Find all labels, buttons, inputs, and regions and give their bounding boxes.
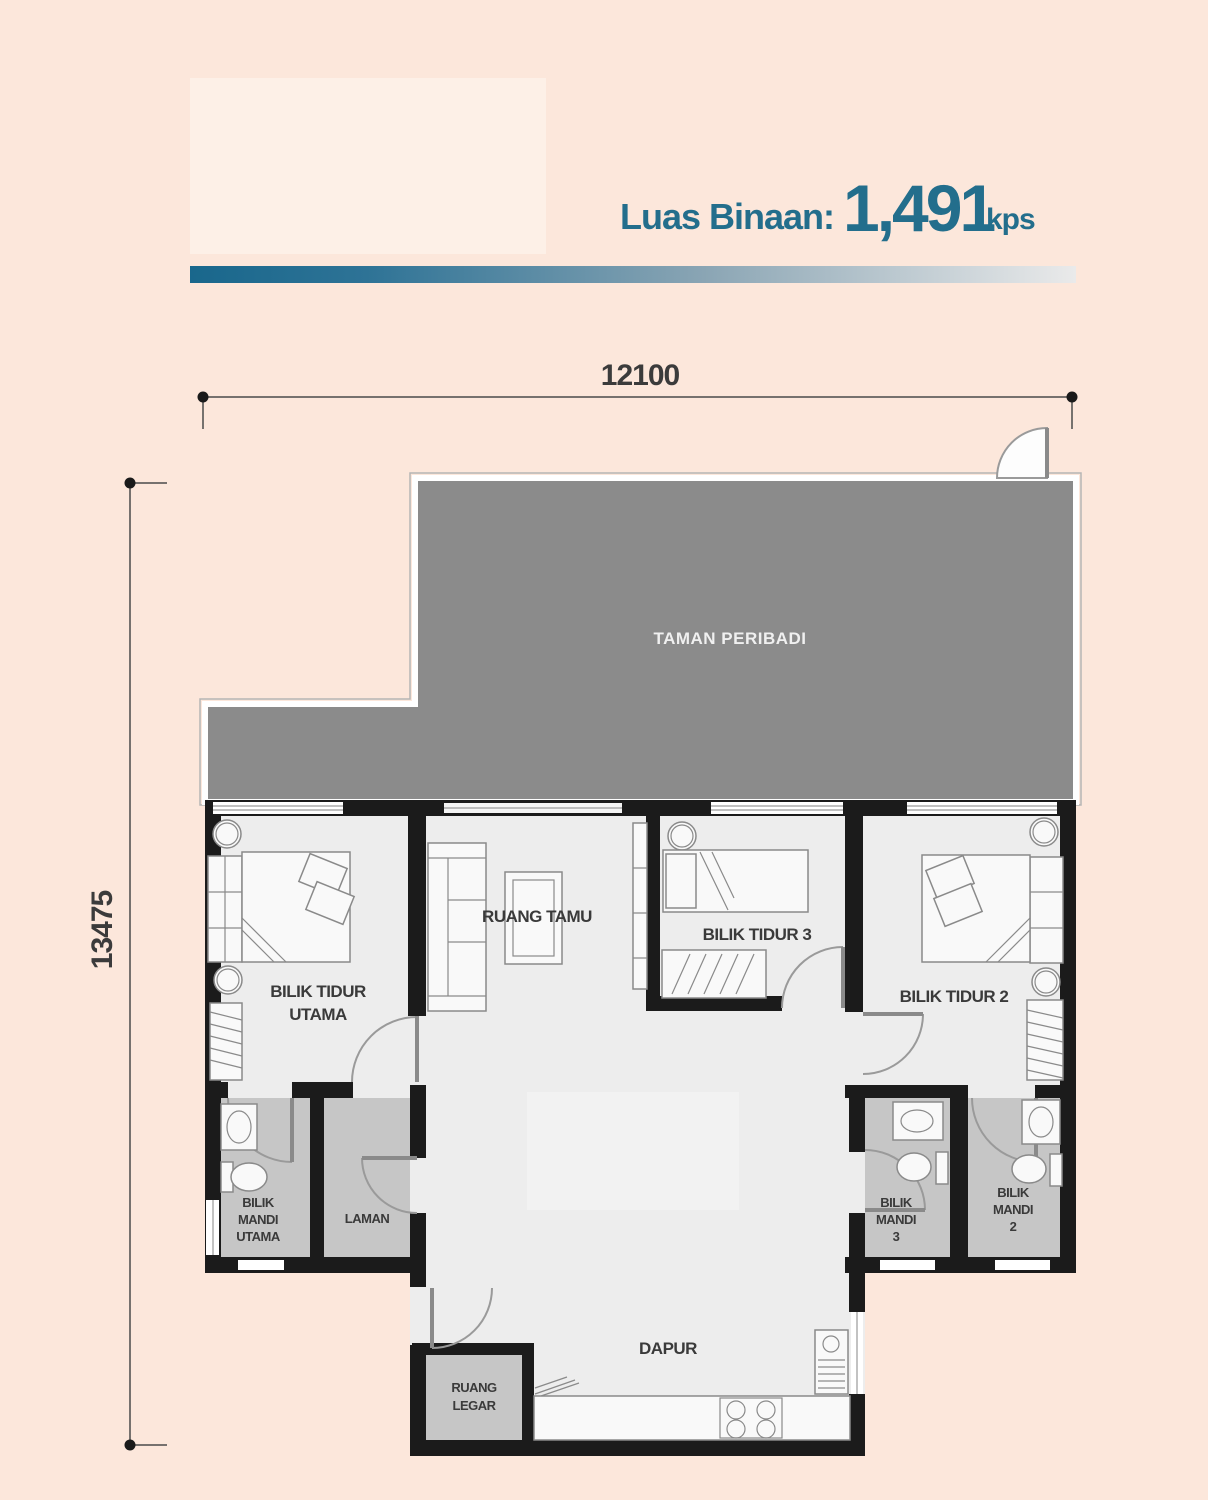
garden-area <box>205 478 1076 802</box>
area-unit: kps <box>986 203 1035 236</box>
label-foyer-line1: RUANG <box>451 1380 497 1395</box>
kitchen-sink-unit <box>815 1330 848 1394</box>
ceiling-fan-icon <box>213 820 241 848</box>
label-bathmaster-line1: BILIK <box>242 1195 275 1210</box>
header: Luas Binaan: 1,491 kps <box>190 78 1076 283</box>
label-bath2-line3: 2 <box>1010 1219 1017 1234</box>
label-kitchen: DAPUR <box>639 1339 697 1358</box>
dimension-top: 12100 <box>198 359 1078 429</box>
dining-table-faint <box>527 1092 739 1210</box>
label-living: RUANG TAMU <box>482 907 592 926</box>
label-bath2-line2: MANDI <box>993 1202 1033 1217</box>
window-bed3 <box>711 802 843 814</box>
wall-bath3-bath2 <box>950 1098 968 1257</box>
label-bath2-line1: BILIK <box>997 1185 1030 1200</box>
wall-bath3-top <box>845 1085 968 1098</box>
area-value: 1,491 <box>843 171 994 245</box>
ceiling-fan-icon <box>214 966 242 994</box>
private-garden: TAMAN PERIBADI <box>200 428 1081 805</box>
wall-master-south-1 <box>205 1082 228 1098</box>
floorplan-page: Luas Binaan: 1,491 kps 12100 13475 TAMAN… <box>0 0 1208 1500</box>
dim-top-dot-left <box>198 392 209 403</box>
ceiling-fan-icon <box>1032 968 1060 996</box>
window-master <box>213 802 343 814</box>
wall-living-bed3 <box>646 800 660 1008</box>
master-wardrobe <box>210 1003 242 1080</box>
toilet-bowl <box>1012 1155 1046 1183</box>
wall-bed3-bed2 <box>845 800 863 1012</box>
label-bed3: BILIK TIDUR 3 <box>703 925 812 944</box>
bed3-desk <box>662 950 766 998</box>
wall-laman-right-2 <box>410 1213 426 1287</box>
toilet-bowl <box>231 1163 267 1191</box>
tv-console <box>633 823 647 989</box>
label-master-line1: BILIK TIDUR <box>270 982 366 1001</box>
label-bathmaster-line3: UTAMA <box>236 1229 281 1244</box>
label-bath3-line2: MANDI <box>876 1212 916 1227</box>
sofa <box>428 843 486 1011</box>
vent-bath2 <box>995 1260 1050 1270</box>
dim-width-text: 12100 <box>601 359 680 392</box>
label-bathmaster-line2: MANDI <box>238 1212 278 1227</box>
ceiling-fan-icon <box>1030 818 1058 846</box>
floorplan-svg: Luas Binaan: 1,491 kps 12100 13475 TAMAN… <box>0 0 1208 1500</box>
label-bath3-line1: BILIK <box>880 1195 913 1210</box>
wall-kitchen-left <box>410 1345 426 1456</box>
window-bed2 <box>907 802 1057 814</box>
label-bed2: BILIK TIDUR 2 <box>900 987 1009 1006</box>
vent-left-block <box>238 1260 284 1270</box>
ceiling-fan-icon <box>668 822 696 850</box>
vent-bath3 <box>880 1260 935 1270</box>
bed3-pillow <box>666 854 696 908</box>
logo-placeholder <box>190 78 546 254</box>
area-label: Luas Binaan: <box>620 196 834 237</box>
gradient-divider-bar <box>190 266 1076 283</box>
toilet-tank <box>936 1152 948 1184</box>
toilet-tank <box>1050 1154 1062 1186</box>
label-foyer-line2: LEGAR <box>453 1398 497 1413</box>
wall-kitchen-bottom <box>410 1440 865 1456</box>
dim-top-dot-right <box>1067 392 1078 403</box>
bed2-cabinet <box>1030 857 1063 963</box>
laman-floor <box>324 1098 410 1257</box>
wall-kitchen-right-2 <box>849 1213 865 1312</box>
dim-left-dot-bottom <box>125 1440 136 1451</box>
dim-height-text: 13475 <box>86 890 119 969</box>
dim-left-dot-top <box>125 478 136 489</box>
label-master-line2: UTAMA <box>289 1005 347 1024</box>
toilet-bowl <box>897 1153 931 1181</box>
wall-foyer-right <box>522 1343 534 1443</box>
wall-laman-right-1 <box>410 1085 426 1158</box>
garden-label: TAMAN PERIBADI <box>653 629 806 648</box>
wall-kitchen-right-3 <box>849 1394 865 1456</box>
kitchen-counter <box>534 1396 850 1440</box>
dimension-left: 13475 <box>86 478 167 1451</box>
garden-gate-door <box>997 428 1047 478</box>
wall-bath2-top <box>1035 1085 1076 1098</box>
wall-bathmaster-laman <box>310 1090 324 1257</box>
label-bath3-line3: 3 <box>893 1229 900 1244</box>
wall-master-living <box>408 800 426 1016</box>
bed2-wardrobe <box>1027 1000 1063 1080</box>
label-laman: LAMAN <box>345 1211 390 1226</box>
